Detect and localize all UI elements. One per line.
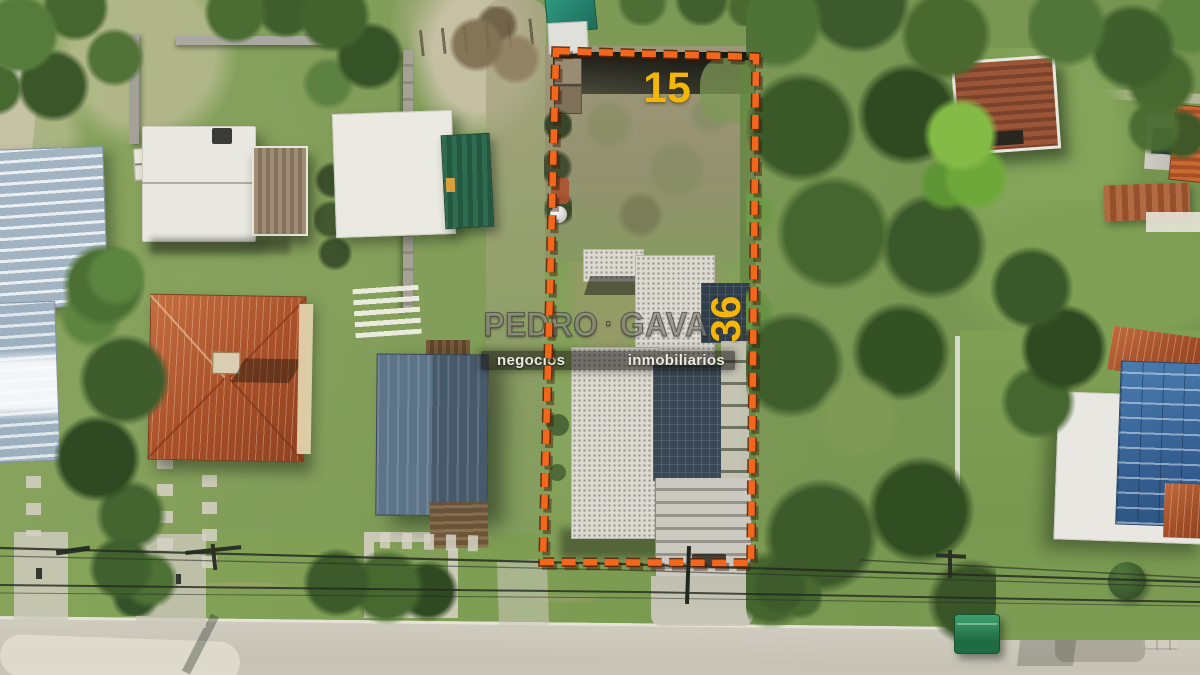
lot-boundary-dashed [543,51,756,563]
lot-boundary-shadow [546,55,759,567]
aerial-photo: PEDRO · GAVA negocios inmobiliarios 15 3… [0,0,1200,675]
power-line-3 [0,585,1200,602]
lot-boundary-outline [543,51,756,563]
overlay-svg [0,0,1200,675]
power-line-2 [0,556,1200,587]
power-line-5 [860,560,1200,578]
